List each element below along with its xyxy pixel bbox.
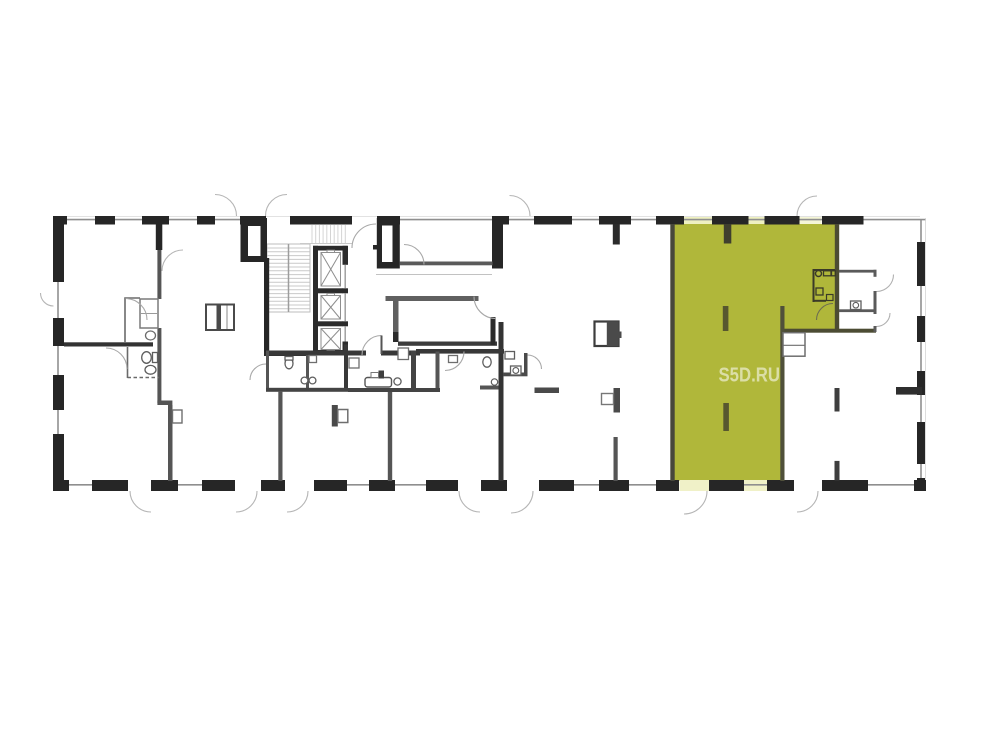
svg-text:S5D.RU: S5D.RU (719, 364, 781, 387)
